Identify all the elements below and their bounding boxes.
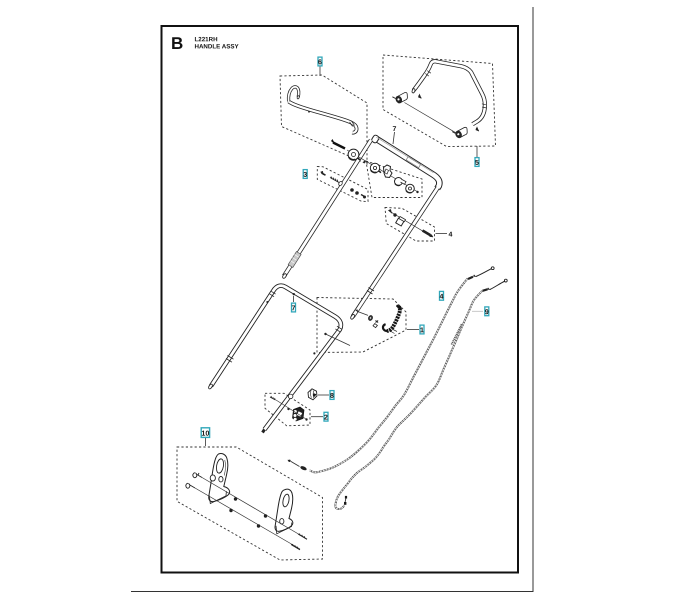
svg-text:B: B bbox=[171, 34, 183, 53]
svg-text:4: 4 bbox=[440, 294, 444, 301]
svg-text:4: 4 bbox=[449, 231, 453, 238]
svg-text:5: 5 bbox=[475, 160, 479, 167]
svg-text:7: 7 bbox=[393, 126, 397, 133]
svg-text:1: 1 bbox=[420, 327, 424, 334]
svg-text:HANDLE ASSY: HANDLE ASSY bbox=[194, 43, 239, 50]
svg-text:2: 2 bbox=[324, 414, 328, 421]
svg-text:7: 7 bbox=[292, 305, 296, 312]
svg-text:6: 6 bbox=[318, 59, 322, 66]
svg-text:10: 10 bbox=[201, 429, 209, 438]
svg-text:8: 8 bbox=[330, 393, 334, 400]
svg-text:L221RH: L221RH bbox=[194, 36, 218, 43]
svg-text:9: 9 bbox=[485, 309, 489, 316]
svg-text:3: 3 bbox=[303, 172, 307, 179]
